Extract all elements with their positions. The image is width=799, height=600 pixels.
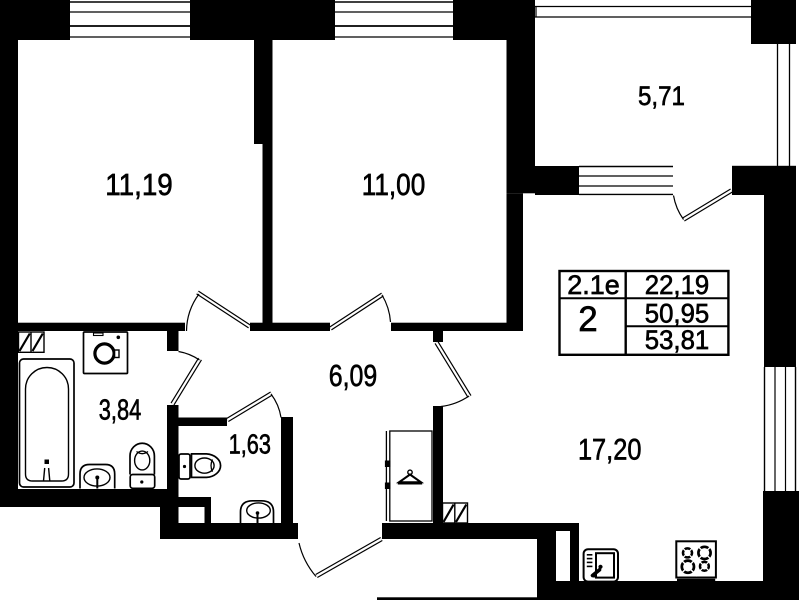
svg-text:11,19: 11,19 <box>105 168 173 202</box>
svg-text:5,71: 5,71 <box>638 81 685 111</box>
svg-text:2.1е: 2.1е <box>567 270 620 300</box>
svg-text:6,09: 6,09 <box>329 359 378 393</box>
svg-text:1,63: 1,63 <box>229 429 271 460</box>
svg-text:2: 2 <box>578 300 597 339</box>
svg-text:50,95: 50,95 <box>645 299 710 329</box>
svg-text:11,00: 11,00 <box>362 168 426 202</box>
svg-text:17,20: 17,20 <box>578 434 642 467</box>
svg-text:53,81: 53,81 <box>645 325 710 355</box>
svg-text:22,19: 22,19 <box>645 270 710 300</box>
svg-text:3,84: 3,84 <box>99 395 142 427</box>
